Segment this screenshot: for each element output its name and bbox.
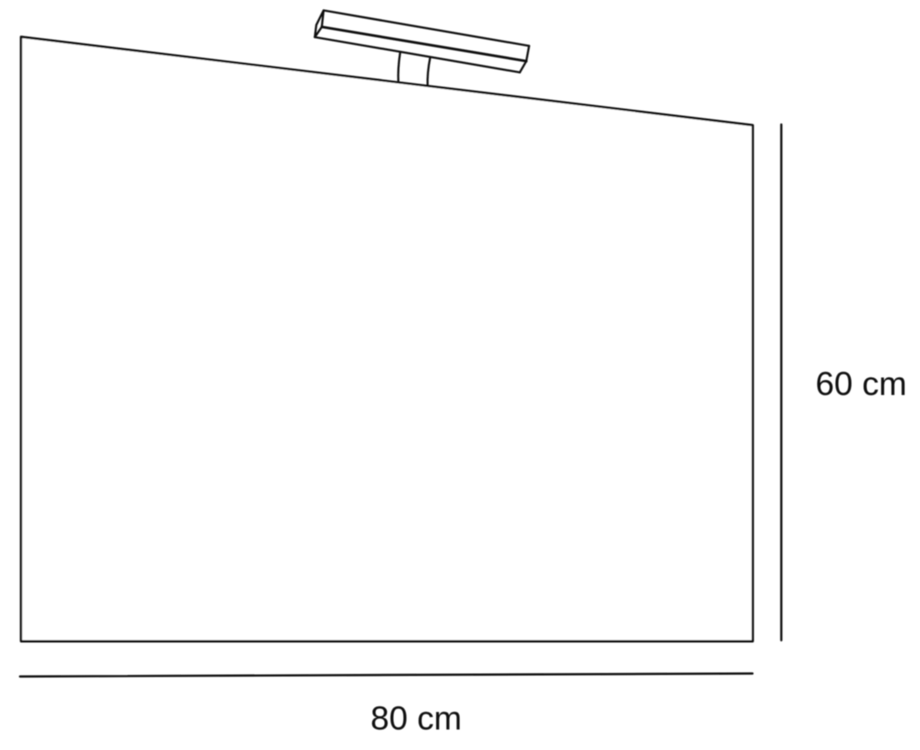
svg-text:60 cm: 60 cm (816, 366, 907, 403)
svg-text:80 cm: 80 cm (371, 700, 462, 737)
